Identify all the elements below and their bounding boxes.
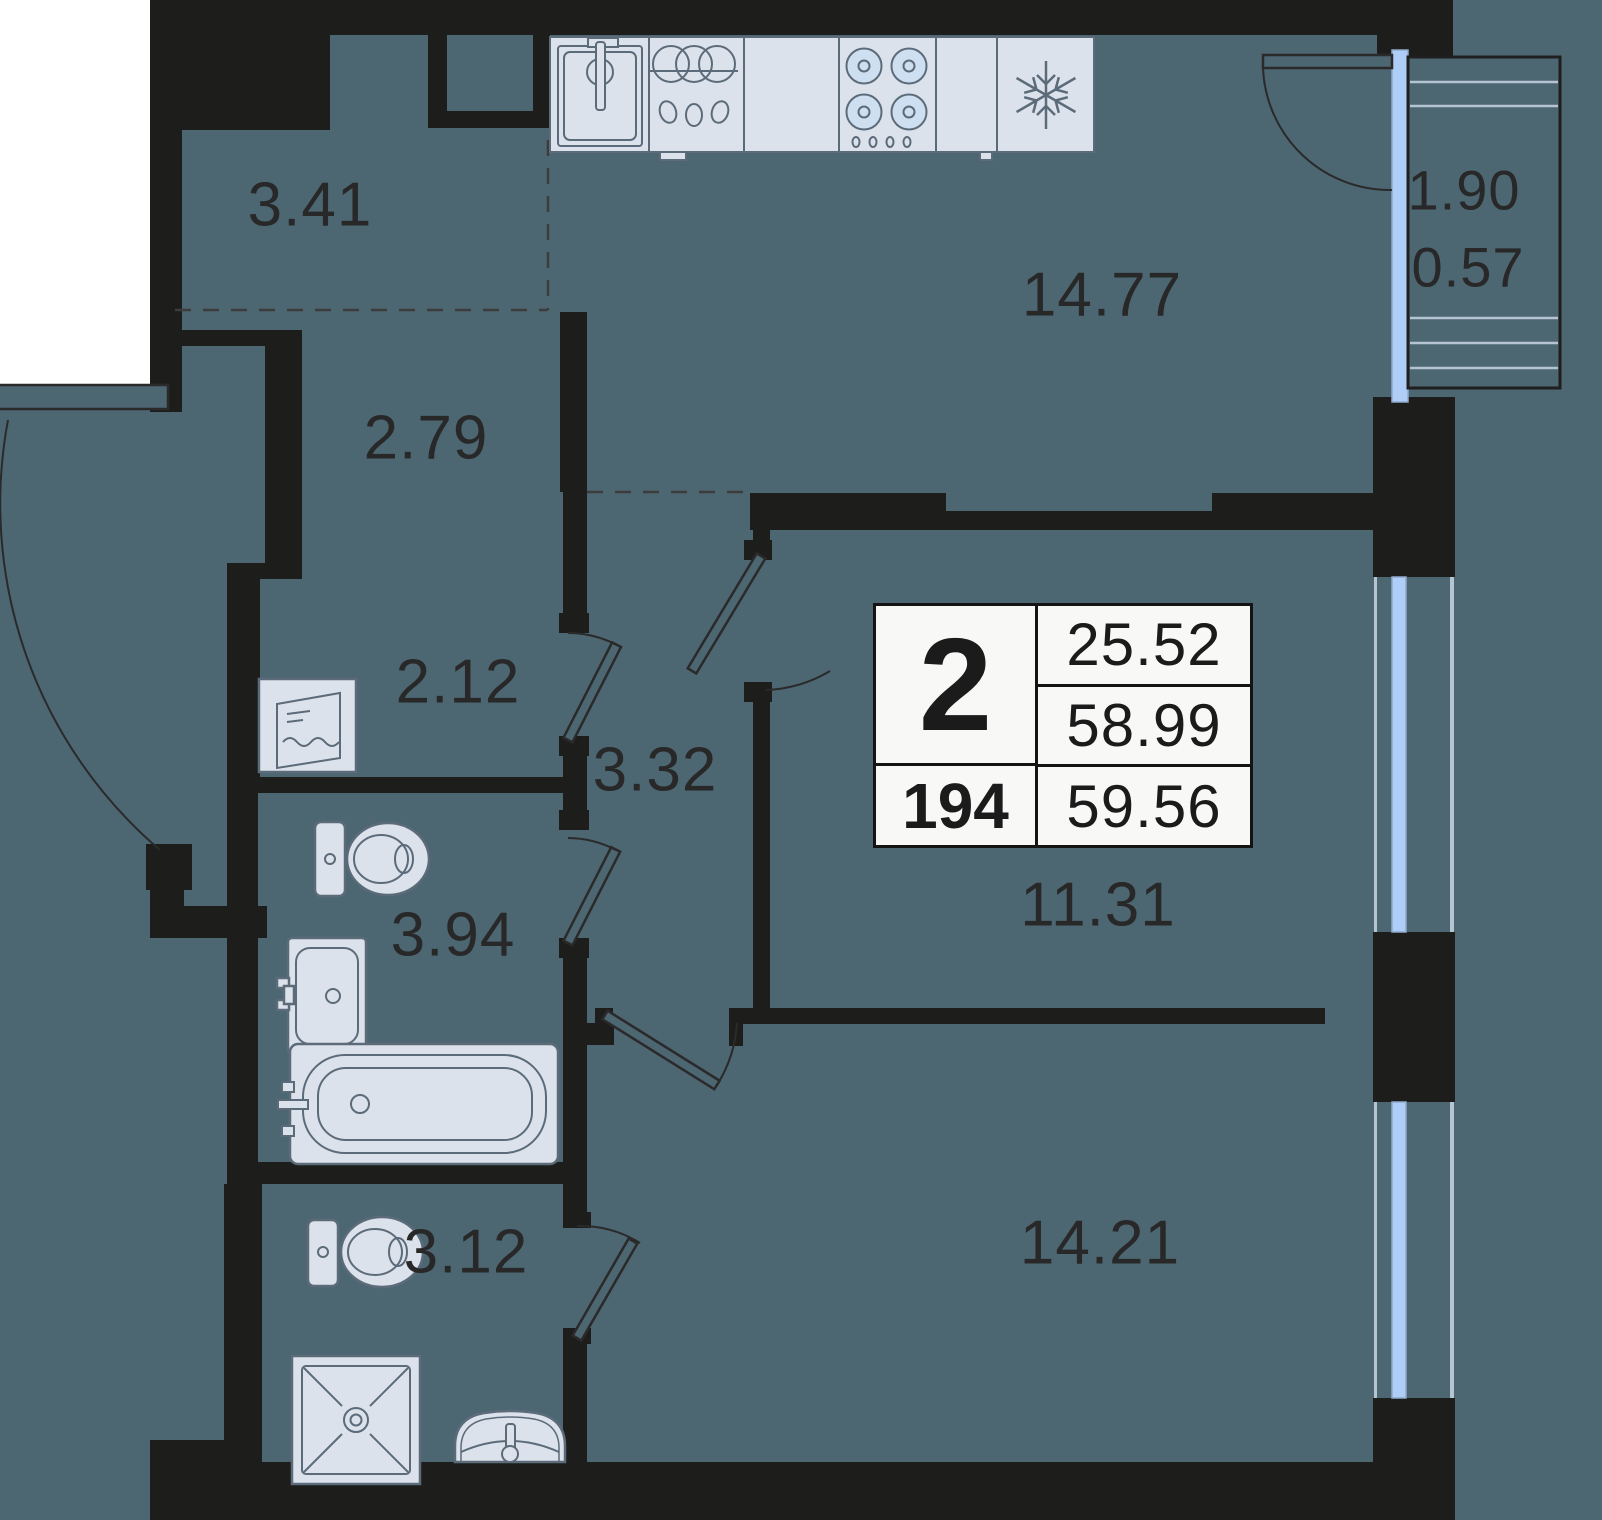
room-area-label-storage: 2.12 [396, 647, 521, 718]
floor-plan-drawing [0, 0, 1602, 1520]
rooms-count: 2 [876, 606, 1035, 763]
outside-area [0, 0, 152, 388]
storage-door [564, 633, 621, 742]
shower-room-door [573, 1226, 640, 1341]
shower-tray-icon [292, 1356, 420, 1484]
apartment-number: 194 [876, 763, 1035, 845]
floor-plan: 3.41 2.79 2.12 3.32 3.94 3.12 14.77 11.3… [0, 0, 1602, 1520]
balcony-area-label: 0.57 [1412, 235, 1525, 300]
room-area-label-room-2: 14.21 [1020, 1208, 1180, 1279]
balcony-glazing [1392, 50, 1408, 402]
room-area-label-shower-room: 3.12 [404, 1217, 529, 1288]
room-area-label-inner-hall: 3.32 [593, 735, 718, 806]
room-area-label-kitchen-living: 14.77 [1022, 260, 1182, 331]
apartment-info-table: 2 194 25.52 58.99 59.56 [873, 603, 1253, 848]
room-area-label-bathroom: 3.94 [391, 900, 516, 971]
room-area-label-corridor: 2.79 [364, 403, 489, 474]
balcony-outline [1408, 57, 1560, 388]
room-area-label-entry-hall: 3.41 [248, 170, 373, 241]
entry-door [0, 385, 168, 850]
balcony-length-label: 1.90 [1408, 158, 1521, 223]
bathtub-icon [278, 1044, 558, 1164]
area-without-balcony: 58.99 [1038, 684, 1250, 765]
window-2 [1392, 1102, 1406, 1398]
room-1-door [688, 553, 830, 690]
washing-machine-icon [259, 679, 356, 772]
wash-basin-icon [277, 938, 366, 1054]
toilet-icon [315, 822, 429, 896]
corner-basin-icon [455, 1411, 565, 1462]
total-area: 59.56 [1038, 764, 1250, 845]
window-1 [1392, 577, 1406, 932]
room-area-label-room-1: 11.31 [1020, 870, 1176, 941]
bathroom-door [564, 838, 621, 945]
living-area: 25.52 [1038, 606, 1250, 684]
room-2-door [602, 1011, 737, 1089]
kitchen-sink-icon [558, 38, 642, 146]
balcony-door [1263, 55, 1392, 190]
